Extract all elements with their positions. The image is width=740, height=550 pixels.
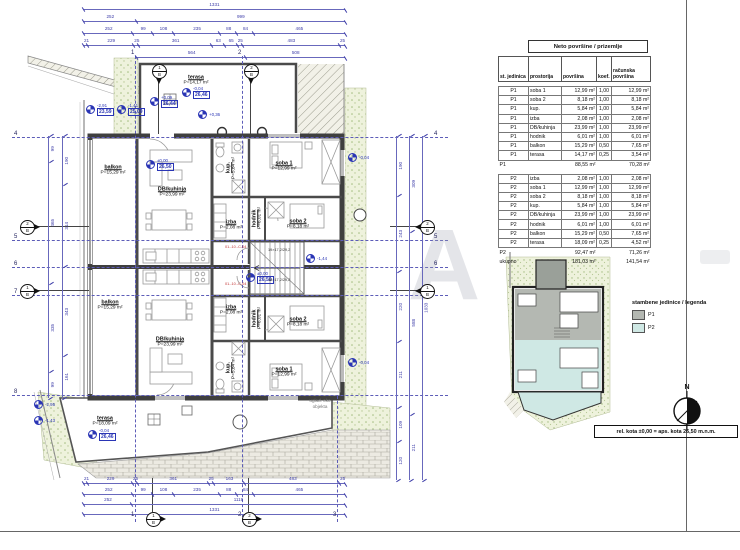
dimension-chain: 212292536163652548325: [84, 38, 345, 46]
level-icon: [34, 416, 43, 425]
elevation-marker: -0,04: [348, 153, 369, 162]
elevation-marker: -2,95: [34, 400, 55, 409]
table-row: P2soba 112,99 m²1,0012,99 m²: [499, 183, 651, 192]
section-mark: 2B: [420, 220, 435, 235]
axis-label: 5: [14, 234, 17, 240]
section-mark: 2B: [244, 64, 259, 79]
section-line: [33, 290, 89, 291]
level-icon: [246, 273, 255, 282]
room-label-terasa-p1: terasaP=14,17 m²: [184, 74, 209, 86]
level-icon: [117, 105, 126, 114]
table-row: P2izba2,08 m²1,002,08 m²: [499, 174, 651, 183]
table-row: P2terasa18,09 m²0,254,52 m²: [499, 238, 651, 247]
legend-swatch-p1: [632, 310, 645, 320]
elevation-marker: -1,44: [306, 254, 327, 263]
watermark-smudge: [700, 250, 730, 264]
axis-label: 5: [434, 234, 437, 240]
legend-title: stambene jedinice / legenda: [632, 300, 706, 306]
stair-code: 01.-10.-C-04: [225, 245, 246, 249]
dimension-chain: 252991082358884465: [84, 487, 345, 495]
elevation-marker: -0,0426,46: [182, 86, 210, 99]
legend-item-p2: P2: [632, 323, 706, 333]
sheet-border-right: [686, 0, 687, 532]
level-icon: [150, 97, 159, 106]
table-row: P1soba 28,18 m²1,008,18 m²: [499, 96, 651, 105]
grid-axis-2: [242, 56, 243, 522]
north-label: N: [664, 384, 710, 391]
table-row: P1DB/kuhinja23,99 m²1,0023,99 m²: [499, 123, 651, 132]
area-table: Neto površine / prizemlje st. jedinica p…: [498, 40, 652, 266]
elevation-marker: -0,0426,46: [88, 428, 116, 441]
table-rows-p2: P2izba2,08 m²1,002,08 m²P2soba 112,99 m²…: [499, 174, 651, 248]
room-label-hodnik-p2: hodnikP=6,01 m²: [251, 307, 263, 329]
table-total-p2: P292,47 m²71,26 m² ukupno181,03 m²141,54…: [499, 248, 651, 267]
room-label-soba1-p1: soba 1P=12,99 m²: [272, 160, 297, 172]
level-icon: [198, 110, 207, 119]
legend-swatch-p2: [632, 323, 645, 333]
dimension-chain: 21229253612516348325: [84, 476, 345, 484]
level-icon: [86, 105, 95, 114]
grid-axis-7: [12, 295, 448, 296]
site-marker: [354, 209, 366, 221]
elevation-marker: ±0,0026,50: [146, 158, 174, 171]
table-title: Neto površine / prizemlje: [528, 40, 648, 53]
section-mark: 2B: [242, 512, 257, 527]
table-row: P2hodnik6,01 m²1,006,01 m²: [499, 220, 651, 229]
axis-label: 7: [14, 289, 17, 295]
dimension-chain: 252999: [84, 14, 345, 22]
room-label-izba-p2: izbaP=2,08 m²: [220, 304, 242, 316]
elevation-marker: +0,0926,44: [150, 95, 178, 108]
level-icon: [182, 88, 191, 97]
col-st-jedinica: st. jedinica: [499, 57, 529, 82]
room-label-terasa-p2: terasaP=18,09 m²: [93, 415, 118, 427]
table-total-p1: P188,55 m²70,28 m²: [499, 160, 651, 170]
elevation-marker: -1,4125,09: [117, 103, 145, 116]
dimension-chain: 1331: [84, 2, 345, 10]
legend-item-p1: P1: [632, 310, 706, 320]
stair-steps-note: 18×17,2/29,2: [268, 278, 290, 282]
grid-axis-8: [12, 395, 448, 396]
dimension-chain: 1331: [84, 507, 345, 515]
table-row: P1balkon15,29 m²0,507,65 m²: [499, 142, 651, 151]
dimension-chain: 2521119: [84, 497, 345, 505]
room-label-soba1-p2: soba 1P=12,99 m²: [272, 366, 297, 378]
key-plan: [498, 252, 630, 434]
level-icon: [306, 254, 315, 263]
stair-steps-note: 19×17,2/29,2: [268, 248, 290, 252]
dimension-chain: 309588211: [409, 136, 417, 480]
table-row: P1izba2,08 m²1,002,08 m²: [499, 114, 651, 123]
grid-axis-6: [12, 267, 448, 268]
axis-label: 2: [238, 512, 241, 518]
dimension-chain: 252991082358884465: [84, 26, 345, 34]
col-prostorija: prostorija: [529, 57, 562, 82]
table-row: P1terasa14,17 m²0,253,54 m²: [499, 151, 651, 160]
room-label-balkon-p1: balkonP=15,29 m²: [101, 164, 126, 176]
table-row: P2DB/kuhinja23,99 m²1,0023,99 m²: [499, 211, 651, 220]
table-header: st. jedinica prostorija površina koef. r…: [499, 57, 651, 82]
stair-code: 01.-10.-C-04: [225, 282, 246, 286]
room-label-db-p1: DB/kuhinjaP=23,99 m²: [158, 186, 186, 198]
axis-label: 1: [131, 50, 134, 56]
table-row: P1hodnik6,01 m²1,006,01 m²: [499, 132, 651, 141]
axis-label: 6: [434, 261, 437, 267]
table-rows-p1: P1soba 112,99 m²1,0012,99 m²P1soba 28,18…: [499, 87, 651, 161]
axis-label: 6: [14, 261, 17, 267]
section-mark: 2B: [20, 220, 35, 235]
elevation-marker: -1,43: [34, 416, 55, 425]
level-icon: [88, 430, 97, 439]
axis-label: 8: [14, 389, 17, 395]
axis-label: 3: [333, 512, 336, 518]
table-row: P1kup.5,84 m²1,005,84 m²: [499, 105, 651, 114]
legend-label-p2: P2: [648, 325, 655, 331]
axis-label: 4: [14, 131, 17, 137]
grid-axis-1: [135, 56, 136, 522]
dimension-chain: 190243220211109120: [396, 136, 404, 480]
axis-label: 4: [434, 131, 437, 137]
legend-label-p1: P1: [648, 312, 655, 318]
level-icon: [348, 153, 357, 162]
table-row: P1soba 112,99 m²1,0012,99 m²: [499, 87, 651, 96]
section-mark: 1B: [20, 284, 35, 299]
table-row: P2balkon15,29 m²0,507,65 m²: [499, 229, 651, 238]
axis-label: 2: [238, 50, 241, 56]
level-icon: [146, 160, 155, 169]
table-row: P2soba 28,18 m²1,008,18 m²: [499, 192, 651, 201]
axis-label: 1: [131, 512, 134, 518]
datum-note: rel. kota ±0,00 = aps. kota 26,50 m.n.m.: [594, 425, 738, 438]
grid-axis-4: [12, 137, 448, 138]
room-label-kup-p1: kup.P=5,84 m²: [225, 157, 237, 179]
section-line: [33, 226, 89, 227]
dimension-chain: 190314343161: [62, 136, 70, 398]
room-label-izba-p1: izbaP=2,08 m²: [220, 219, 242, 231]
level-icon: [348, 358, 357, 367]
table-row: P2kup.5,84 m²1,005,84 m²: [499, 202, 651, 211]
section-mark: 1B: [146, 512, 161, 527]
room-label-kup-p2: kup.P=5,84 m²: [225, 357, 237, 379]
section-mark: 1B: [152, 64, 167, 79]
site-label: uglađ. oko objekta: [305, 398, 335, 409]
room-label-soba2-p2: soba 2P=8,18 m²: [287, 316, 309, 328]
elevation-marker: +0,36: [198, 110, 220, 119]
col-povrsina: površina: [562, 57, 597, 82]
room-label-balkon-p2: balkonP=15,29 m²: [98, 299, 123, 311]
room-label-db-p2: DB/kuhinjaP=23,99 m²: [156, 336, 184, 348]
grid-axis-5: [12, 240, 448, 241]
dimension-chain: 9946533599: [48, 136, 56, 398]
col-koef: koef.: [597, 57, 612, 82]
section-mark: 1B: [420, 284, 435, 299]
elevation-marker: -2,9123,59: [86, 103, 114, 116]
elevation-marker: -0,04: [348, 358, 369, 367]
unit-legend: stambene jedinice / legenda P1 P2: [632, 300, 706, 336]
room-label-hodnik-p1: hodnikP=6,01 m²: [251, 207, 263, 229]
section-line: [250, 77, 251, 134]
level-icon: [34, 400, 43, 409]
room-label-soba2-p1: soba 2P=8,18 m²: [287, 218, 309, 230]
col-racunska: računska površina: [612, 57, 651, 82]
drawing-sheet: A 1 2 1 2 3 4 5 6 7 8 4 5 6 2B 1B 2B 1B …: [0, 0, 740, 550]
dimension-chain: 1033: [422, 136, 430, 480]
